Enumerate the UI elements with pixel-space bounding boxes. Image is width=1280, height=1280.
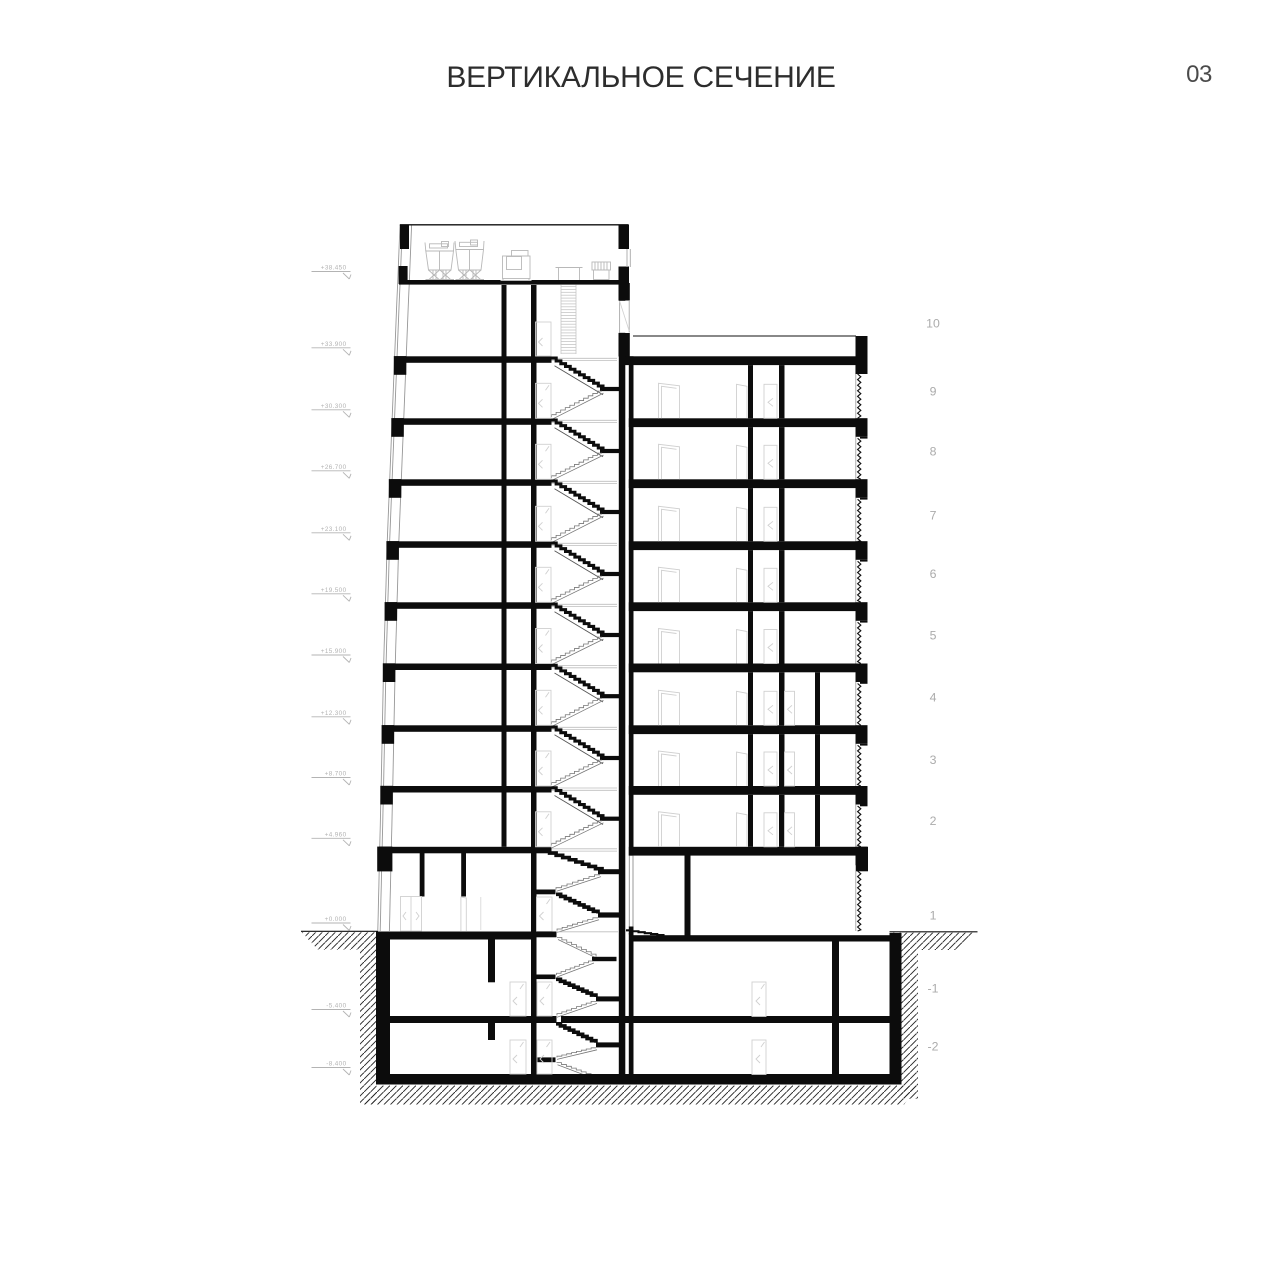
svg-text:+30.300: +30.300 [321, 403, 347, 410]
svg-text:+33.900: +33.900 [321, 341, 347, 348]
svg-text:7: 7 [930, 509, 937, 523]
svg-text:+38.450: +38.450 [321, 265, 347, 272]
svg-text:+23.100: +23.100 [321, 526, 347, 533]
svg-text:1: 1 [930, 909, 937, 923]
svg-text:03: 03 [1186, 61, 1212, 88]
svg-text:-5.400: -5.400 [326, 1003, 346, 1010]
svg-text:8: 8 [930, 445, 937, 459]
svg-text:5: 5 [930, 629, 937, 643]
svg-text:+15.900: +15.900 [321, 648, 347, 655]
svg-text:-1: -1 [928, 982, 939, 996]
svg-text:+8.700: +8.700 [325, 771, 347, 778]
svg-text:9: 9 [930, 385, 937, 399]
svg-text:-2: -2 [928, 1040, 939, 1054]
svg-text:-8.400: -8.400 [326, 1061, 346, 1068]
svg-text:10: 10 [926, 317, 940, 331]
svg-text:+4.960: +4.960 [325, 831, 347, 838]
svg-text:+12.300: +12.300 [321, 710, 347, 717]
svg-text:+0.000: +0.000 [325, 916, 347, 923]
svg-text:6: 6 [930, 567, 937, 581]
svg-text:4: 4 [930, 691, 937, 705]
svg-text:+26.700: +26.700 [321, 464, 347, 471]
svg-text:+19.500: +19.500 [321, 587, 347, 594]
svg-text:3: 3 [930, 753, 937, 767]
svg-text:ВЕРТИКАЛЬНОЕ СЕЧЕНИЕ: ВЕРТИКАЛЬНОЕ СЕЧЕНИЕ [446, 61, 835, 94]
svg-text:2: 2 [930, 814, 937, 828]
